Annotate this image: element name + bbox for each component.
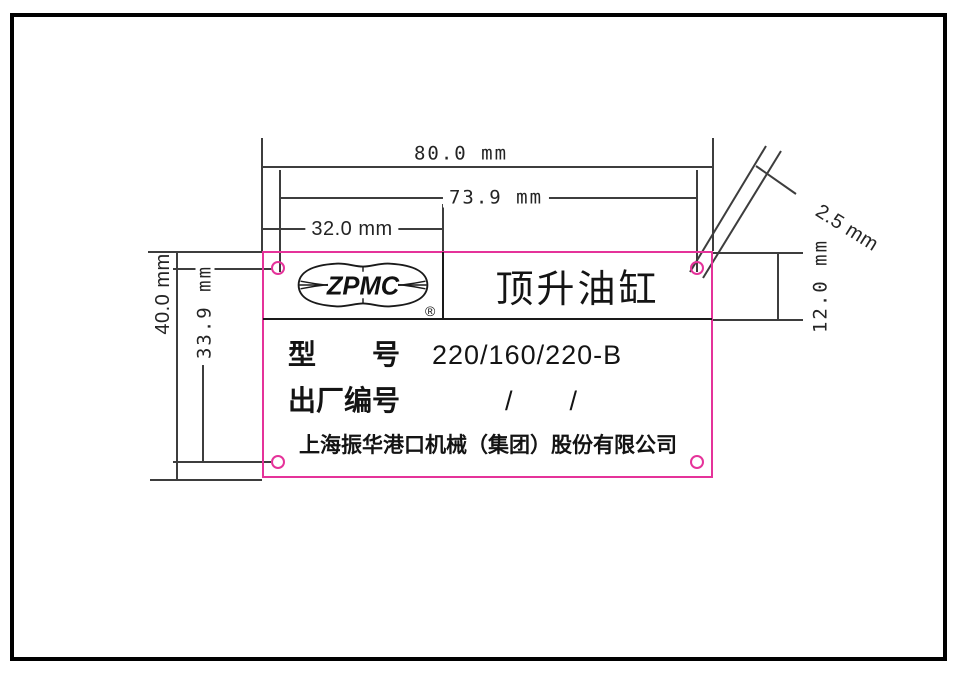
plate-hole-bottom-right <box>690 455 704 469</box>
extension-line-right-edge <box>712 138 714 251</box>
dim-label-overall-width: 80.0 mm <box>414 145 508 164</box>
dim-label-hole-span-width: 73.9 mm <box>443 189 549 208</box>
dimension-line-40mm <box>176 251 178 481</box>
extension-line-top-hole-center <box>173 268 272 270</box>
dim-label-hole-span-height: 33.9 mm <box>196 259 215 365</box>
product-name: 顶升油缸 <box>444 253 711 317</box>
model-value: 220/160/220-B <box>432 342 622 369</box>
dimension-line-12mm <box>777 252 779 321</box>
serial-value: / / <box>505 388 578 415</box>
plate-hole-bottom-left <box>271 455 285 469</box>
plate-hole-top-left <box>271 261 285 275</box>
zpmc-logo: ZPMC <box>292 257 434 313</box>
extension-line-plate-bottom <box>150 479 262 481</box>
model-label: 型 号 <box>288 341 400 369</box>
logo-text: ZPMC <box>326 272 400 300</box>
extension-line-band-bottom <box>713 319 803 321</box>
registered-trademark-symbol: ® <box>425 303 435 319</box>
plate-band-separator <box>263 318 712 320</box>
extension-line-band-top <box>713 252 803 254</box>
dim-label-logo-cell-width: 32.0 mm <box>305 219 398 239</box>
dimension-line-80mm <box>262 166 713 168</box>
dim-label-band-height: 12.0 mm <box>812 239 831 333</box>
extension-line-bottom-hole-center <box>173 461 271 463</box>
dim-label-overall-height: 40.0 mm <box>153 253 173 334</box>
drawing-page: ZPMC ® 顶升油缸 型 号 220/160/220-B 出厂编号 / / 上… <box>0 0 960 678</box>
extension-line-left-edge <box>261 138 263 251</box>
company-name: 上海振华港口机械（集团）股份有限公司 <box>299 433 677 458</box>
serial-label: 出厂编号 <box>288 387 400 415</box>
